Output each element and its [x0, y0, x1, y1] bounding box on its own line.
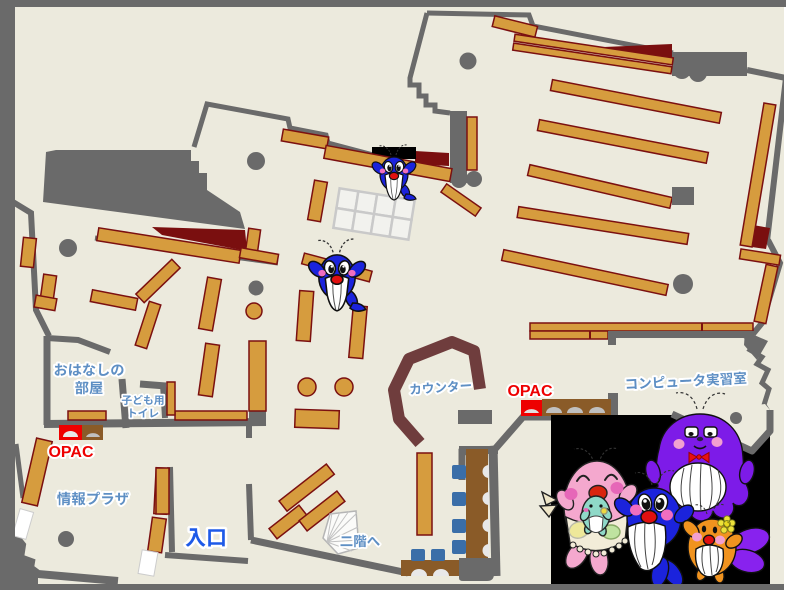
svg-text:OPAC: OPAC [48, 444, 93, 461]
svg-text:OPAC: OPAC [507, 383, 552, 400]
